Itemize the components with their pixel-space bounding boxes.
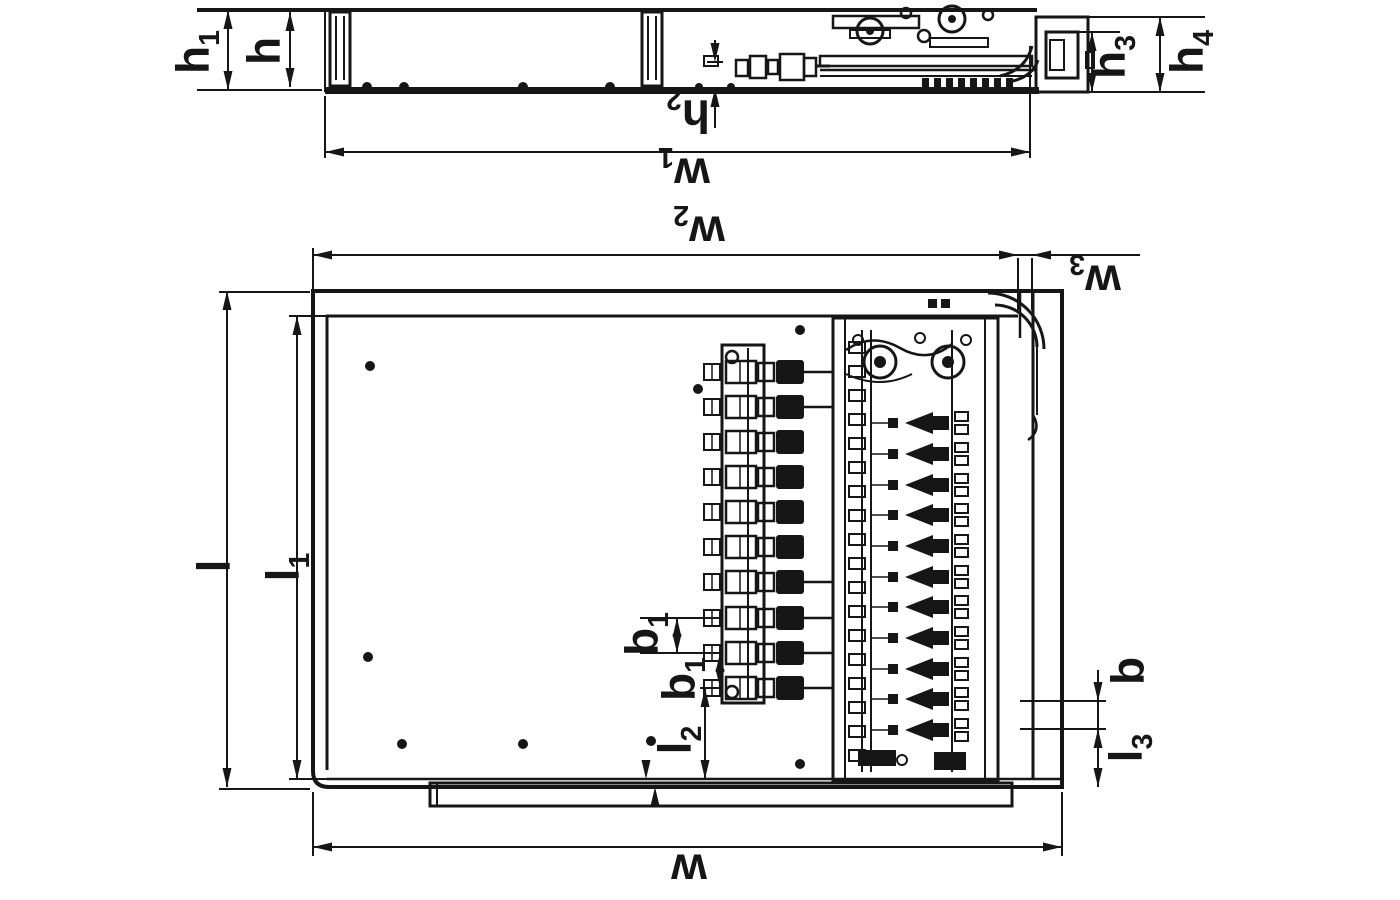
dim-sub: 2: [673, 199, 689, 231]
technical-drawing: h1 h h2 h3 h4 w1 w2 w3 l l1 b1 b1 l2 b l…: [0, 0, 1400, 900]
dim-text: w: [671, 844, 707, 896]
dim-sub: 3: [1127, 734, 1159, 750]
dim-sub: 1: [658, 141, 674, 173]
dim-text: l: [188, 560, 240, 573]
dim-label-w3: w3: [1069, 250, 1121, 305]
dim-text: h: [167, 46, 219, 74]
dim-text: h: [682, 90, 710, 142]
dim-sub: 3: [1110, 35, 1142, 51]
dim-label-b1-first: b1: [619, 612, 674, 656]
dim-text: w: [1085, 255, 1121, 307]
dim-sub: 1: [194, 30, 226, 46]
dim-label-w2: w2: [673, 201, 725, 256]
dim-text: b: [653, 673, 705, 701]
dim-text: l: [1100, 750, 1152, 763]
dim-label-h4: h4: [1164, 30, 1219, 74]
dim-sub: 3: [1069, 248, 1085, 280]
dim-sub: 1: [643, 612, 675, 628]
dim-label-l: l: [191, 560, 246, 573]
dim-text: l: [649, 742, 701, 755]
dim-label-h1: h1: [170, 30, 225, 74]
dim-text: b: [1102, 657, 1154, 685]
dim-label-b: b: [1105, 657, 1160, 685]
dim-label-h3: h3: [1086, 35, 1141, 79]
dim-label-w1: w1: [658, 143, 710, 198]
dim-label-l3: l3: [1103, 734, 1158, 763]
dim-text: w: [674, 148, 710, 200]
dim-sub: 1: [680, 657, 712, 673]
dim-label-b1-second: b1: [656, 657, 711, 701]
dim-sub: 1: [284, 553, 316, 569]
dim-text: h: [1083, 51, 1135, 79]
dim-text: w: [689, 206, 725, 258]
dim-text: l: [257, 569, 309, 582]
dim-label-l2: l2: [652, 726, 707, 755]
dim-sub: 2: [666, 83, 682, 115]
dim-sub: 2: [676, 726, 708, 742]
dim-text: b: [616, 628, 668, 656]
dim-text: h: [1161, 46, 1213, 74]
dim-label-l1: l1: [260, 553, 315, 582]
dim-label-w: w: [671, 839, 707, 894]
dim-label-h2: h2: [666, 85, 710, 140]
dim-label-h: h: [241, 37, 296, 65]
dim-text: h: [238, 37, 290, 65]
dim-sub: 4: [1188, 30, 1220, 46]
